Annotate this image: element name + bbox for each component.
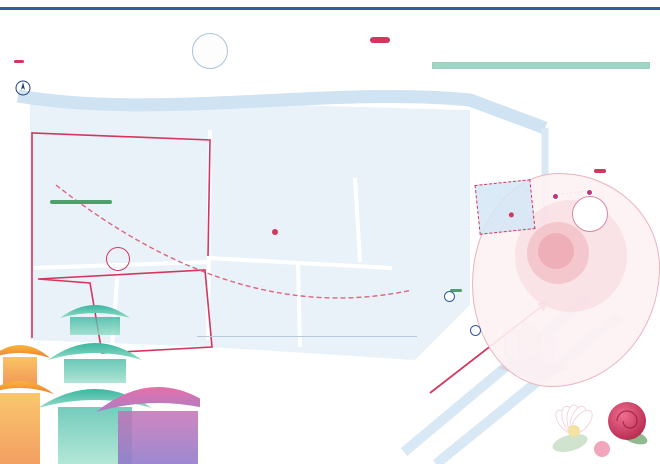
panel-title: [370, 37, 390, 43]
metro-station-icon: [470, 325, 481, 336]
callout-number-icon: [272, 229, 278, 235]
minimap-park-circle: [572, 196, 608, 232]
flower-emblem-icon: [192, 33, 228, 69]
performance-calendar: [432, 62, 650, 69]
pagoda-illustration: [0, 262, 200, 464]
flower-illustration: [530, 385, 660, 464]
minimap-node-icon: [586, 189, 593, 196]
gallery-label: [50, 200, 112, 204]
metro-station-icon: [444, 291, 455, 302]
compass-icon: [12, 80, 34, 96]
minimap-node-icon: [552, 193, 559, 200]
market-callout: [272, 229, 280, 235]
top-divider: [0, 7, 660, 10]
minimap-badge: [594, 169, 606, 173]
minimap-block-label: [476, 184, 530, 190]
minimap-yu-circle: [538, 233, 574, 269]
event-logo: [192, 33, 237, 69]
minimap-block-dot-icon: [509, 212, 514, 217]
venue-divider: [197, 336, 417, 337]
venue-badge: [14, 60, 24, 63]
flower-show-map-poster: [0, 0, 660, 464]
calendar-title: [433, 63, 649, 68]
minimap-yuyuan-block: [475, 179, 536, 235]
